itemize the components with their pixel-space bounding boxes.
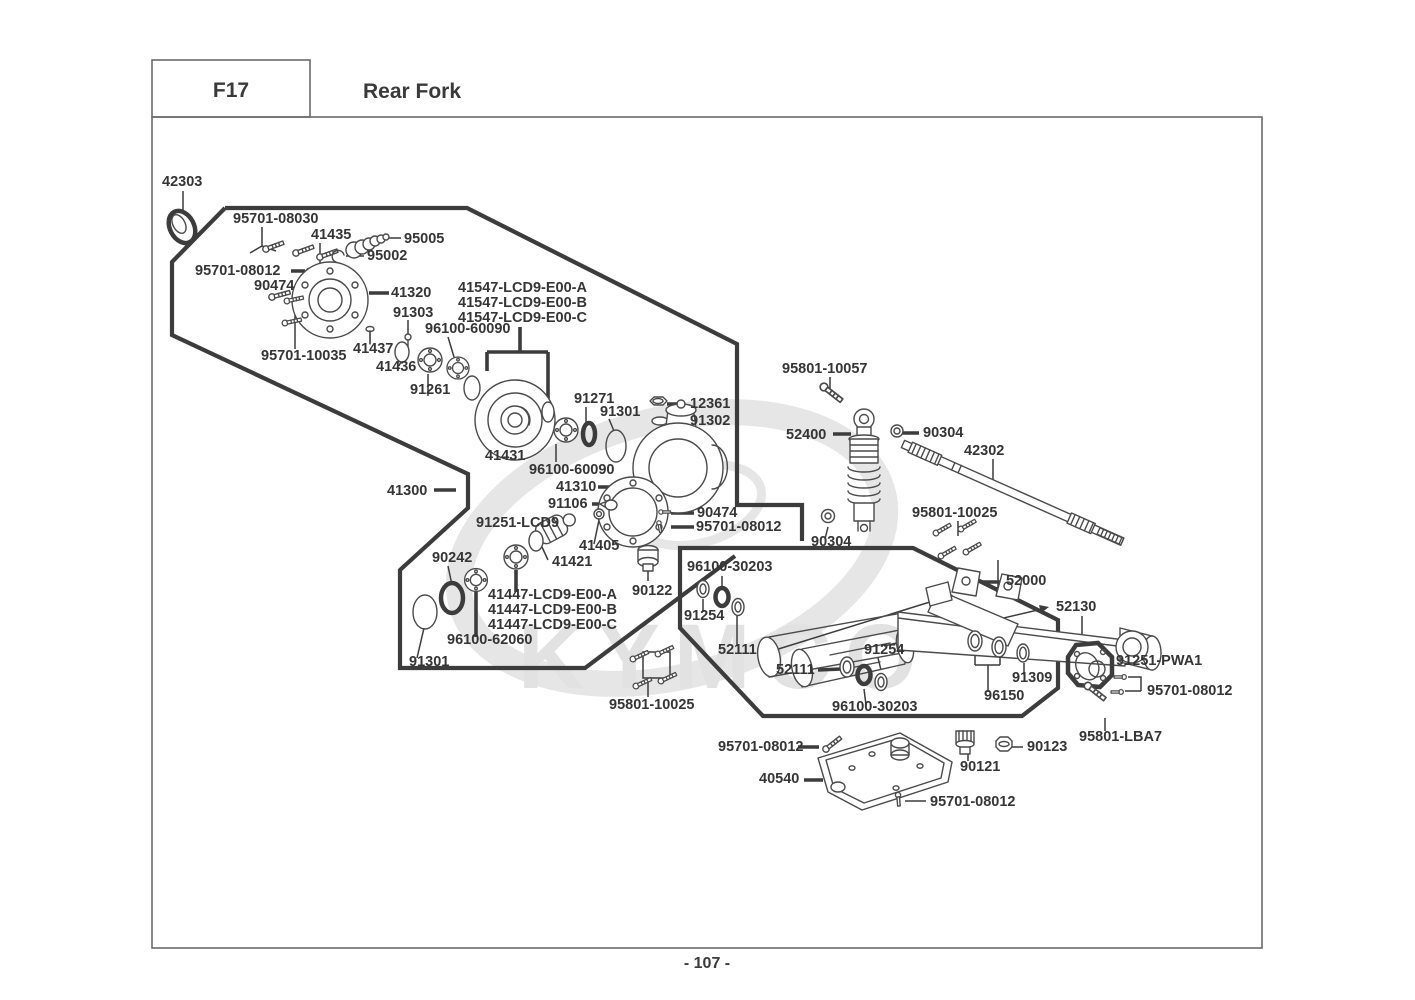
- part-label-95801-10057: 95801-10057: [782, 361, 867, 377]
- part-label-91251-LCD9: 91251-LCD9: [476, 515, 559, 531]
- part-label-91261: 91261: [410, 382, 450, 398]
- bearing-96100-60090: [447, 357, 469, 379]
- part-label-42302: 42302: [964, 443, 1004, 459]
- plug-90121: [956, 731, 974, 754]
- oring-41421: [529, 531, 543, 551]
- part-label-95002: 95002: [367, 248, 407, 264]
- part-label-91309: 91309: [1012, 670, 1052, 686]
- part-label-96100-30203: 96100-30203: [832, 699, 917, 715]
- bolts-95801-10025-upper: [932, 518, 982, 560]
- part-label-91254: 91254: [864, 642, 904, 658]
- nut-90304-lower: [822, 510, 835, 523]
- part-label-95801-LBA7: 95801-LBA7: [1079, 729, 1162, 745]
- part-label-90474: 90474: [254, 278, 294, 294]
- oring: [464, 376, 480, 400]
- part-label-96100-30203: 96100-30203: [687, 559, 772, 575]
- part-label-41447-LCD9-E00-B: 41447-LCD9-E00-B: [488, 602, 617, 618]
- page-number: - 107 -: [684, 955, 730, 972]
- part-label-91254: 91254: [684, 608, 724, 624]
- part-label-95005: 95005: [404, 231, 444, 247]
- bearing-96100-62060: [465, 569, 488, 592]
- part-label-41547-LCD9-E00-B: 41547-LCD9-E00-B: [458, 295, 587, 311]
- part-label-91303: 91303: [393, 305, 433, 321]
- bolts-right: [1083, 675, 1127, 702]
- nut-90304-upper: [891, 425, 903, 437]
- nut-90123: [996, 737, 1012, 751]
- part-label-96100-62060: 96100-62060: [447, 632, 532, 648]
- part-label-90304: 90304: [923, 425, 963, 441]
- part-label-95801-10025: 95801-10025: [609, 697, 694, 713]
- part-label-90122: 90122: [632, 583, 672, 599]
- part-label-96150: 96150: [984, 688, 1024, 704]
- bearing-41447: [504, 545, 528, 569]
- part-label-41405: 41405: [579, 538, 619, 554]
- part-label-90242: 90242: [432, 550, 472, 566]
- bolt-95701-08012-skid: [822, 735, 843, 753]
- part-label-41437: 41437: [353, 341, 393, 357]
- ring-41405: [594, 509, 604, 519]
- part-label-12361: 12361: [690, 396, 730, 412]
- part-label-52000: 52000: [1006, 573, 1046, 589]
- page-title: Rear Fork: [363, 80, 461, 103]
- part-label-90123: 90123: [1027, 739, 1067, 755]
- oring-91301-lower: [413, 595, 437, 629]
- part-label-95701-08012: 95701-08012: [718, 739, 803, 755]
- part-label-52400: 52400: [786, 427, 826, 443]
- pin-90474: [659, 510, 671, 514]
- part-label-95701-08030: 95701-08030: [233, 211, 318, 227]
- part-label-52130: 52130: [1056, 599, 1096, 615]
- part-label-41431: 41431: [485, 448, 525, 464]
- cover-41320: [292, 262, 368, 338]
- part-label-95701-08012: 95701-08012: [696, 519, 781, 535]
- part-label-41320: 41320: [391, 285, 431, 301]
- part-label-41435: 41435: [311, 227, 351, 243]
- part-label-91301: 91301: [600, 404, 640, 420]
- part-label-40540: 40540: [759, 771, 799, 787]
- catalog-page: KYMCO F17 Rear Fork - 107 -: [0, 0, 1415, 1000]
- part-label-91106: 91106: [548, 496, 588, 512]
- part-label-41447-LCD9-E00-A: 41447-LCD9-E00-A: [488, 587, 617, 603]
- nut-12361: [650, 397, 667, 405]
- bearing-96100-60090-2: [554, 418, 578, 442]
- part-label-95701-08012: 95701-08012: [195, 263, 280, 279]
- part-label-91301: 91301: [409, 654, 449, 670]
- part-label-41310: 41310: [556, 479, 596, 495]
- bolt-95801-10057: [819, 382, 844, 404]
- section-code: F17: [213, 79, 249, 102]
- part-label-95801-10025: 95801-10025: [912, 505, 997, 521]
- part-label-90121: 90121: [960, 759, 1000, 775]
- washer: [542, 402, 554, 422]
- part-label-41447-LCD9-E00-C: 41447-LCD9-E00-C: [488, 617, 617, 633]
- part-label-41421: 41421: [552, 554, 592, 570]
- part-label-42303: 42303: [162, 174, 202, 190]
- part-label-41547-LCD9-E00-A: 41547-LCD9-E00-A: [458, 280, 587, 296]
- bearing-91261: [418, 348, 442, 372]
- part-label-41436: 41436: [376, 359, 416, 375]
- part-label-41300: 41300: [387, 483, 427, 499]
- part-label-52111: 52111: [718, 642, 757, 658]
- part-label-95701-08012: 95701-08012: [1147, 683, 1232, 699]
- part-label-41547-LCD9-E00-C: 41547-LCD9-E00-C: [458, 310, 587, 326]
- part-label-90304: 90304: [811, 534, 851, 550]
- part-label-91302: 91302: [690, 413, 730, 429]
- part-label-91251-PWA1: 91251-PWA1: [1116, 653, 1202, 669]
- part-label-96100-60090: 96100-60090: [529, 462, 614, 478]
- plug-90122: [638, 546, 658, 572]
- part-label-95701-08012: 95701-08012: [930, 794, 1015, 810]
- part-label-95701-10035: 95701-10035: [261, 348, 346, 364]
- part-label-52111: 52111: [776, 662, 815, 678]
